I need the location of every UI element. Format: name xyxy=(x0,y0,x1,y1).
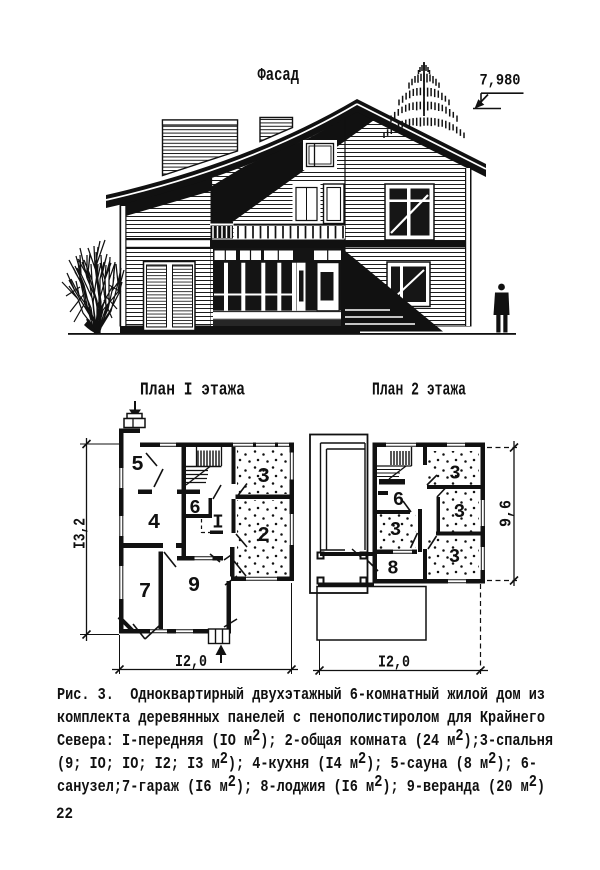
svg-text:4: 4 xyxy=(148,512,161,535)
svg-text:7: 7 xyxy=(139,581,152,604)
svg-text:3: 3 xyxy=(449,463,460,485)
svg-text:22: 22 xyxy=(56,805,73,823)
svg-text:План 2 этажа: План 2 этажа xyxy=(372,381,466,401)
svg-text:3: 3 xyxy=(390,519,401,541)
svg-text:I3,2: I3,2 xyxy=(72,518,91,549)
svg-text:комплекта деревянных панелей с: комплекта деревянных панелей с пенополис… xyxy=(57,709,545,728)
svg-text:Рис. 3. Одноквартирный двухэт: Рис. 3. Одноквартирный двухэтажный 6-ком… xyxy=(57,686,545,705)
svg-text:Севера: I-передняя (IO м2); 2-: Севера: I-передняя (IO м2); 2-общая комн… xyxy=(57,727,553,751)
svg-text:8: 8 xyxy=(387,558,398,580)
svg-text:I2,0: I2,0 xyxy=(175,653,207,672)
svg-text:санузел;7-гараж (I6 м2); 8-лод: санузел;7-гараж (I6 м2); 8-лоджия (I6 м2… xyxy=(57,773,545,797)
svg-text:7,980: 7,980 xyxy=(480,72,521,90)
svg-text:2: 2 xyxy=(257,525,270,548)
svg-text:9: 9 xyxy=(188,575,201,598)
svg-text:(9; IO; IO; I2; I3 м2); 4-кухн: (9; IO; IO; I2; I3 м2); 4-кухня (I4 м2);… xyxy=(57,750,537,774)
svg-text:I: I xyxy=(212,512,223,534)
svg-text:9,6: 9,6 xyxy=(498,500,517,527)
svg-text:6: 6 xyxy=(393,489,404,511)
svg-text:План I этажа: План I этажа xyxy=(140,381,245,401)
svg-text:3: 3 xyxy=(257,466,270,489)
svg-text:6: 6 xyxy=(189,497,200,519)
svg-text:5: 5 xyxy=(131,454,144,477)
svg-text:Фасад: Фасад xyxy=(258,66,300,86)
svg-text:3: 3 xyxy=(454,501,465,523)
svg-text:I2,0: I2,0 xyxy=(378,654,410,673)
svg-text:3: 3 xyxy=(449,546,460,568)
